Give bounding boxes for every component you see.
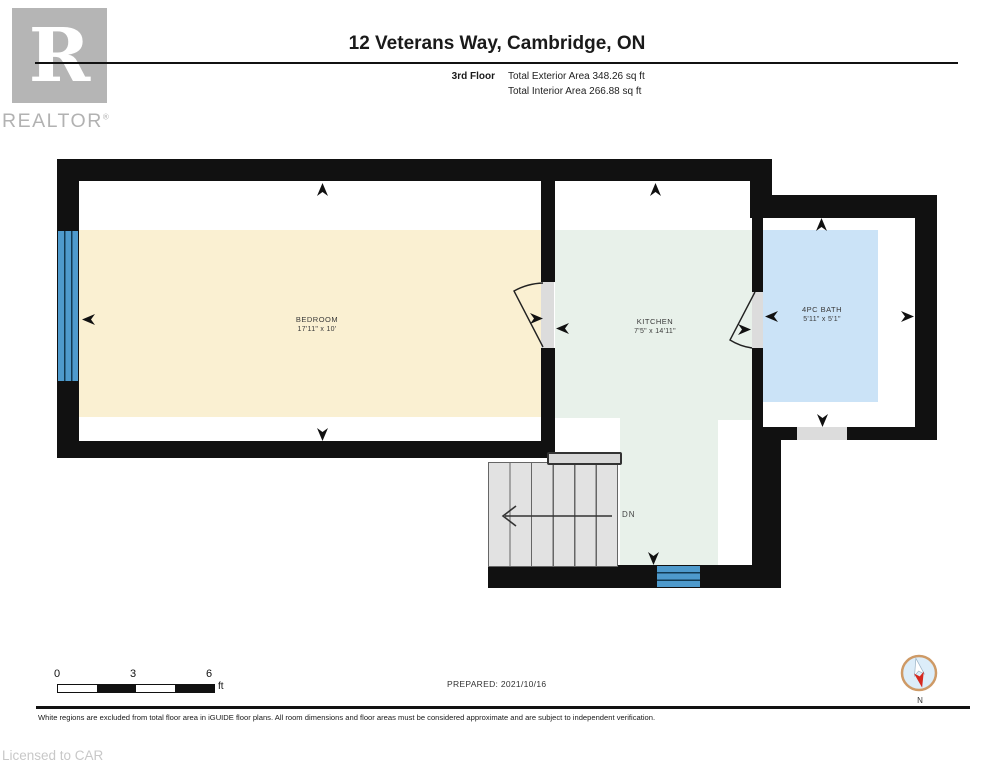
kitchen-arrow-left-icon: [556, 323, 569, 334]
scale-unit: ft: [218, 681, 224, 692]
kitchen-name: KITCHEN: [605, 317, 705, 327]
bath-arrow-down-icon: [817, 414, 828, 427]
disclaimer-text: White regions are excluded from total fl…: [38, 713, 958, 722]
scale-tick-0: 0: [54, 668, 60, 680]
door-swing-and-stair-arrow: [0, 0, 994, 768]
bedroom-arrow-down-icon: [317, 428, 328, 441]
bedroom-label: BEDROOM 17'11" x 10': [217, 315, 417, 335]
prepared-date: PREPARED: 2021/10/16: [447, 679, 546, 689]
compass-icon: [898, 652, 940, 696]
bath-dimensions: 5'11" x 5'1": [772, 315, 872, 325]
footer-divider-line: [36, 706, 970, 709]
bedroom-arrow-up-icon: [317, 183, 328, 196]
bedroom-arrow-left-icon: [82, 314, 95, 325]
license-text: Licensed to CAR: [2, 748, 103, 763]
bath-arrow-right-icon: [901, 311, 914, 322]
kitchen-label: KITCHEN 7'5" x 14'11": [605, 317, 705, 337]
stair-down-arrow: [503, 506, 612, 526]
scale-tick-3: 3: [130, 668, 136, 680]
scale-tick-6: 6: [206, 668, 212, 680]
bedroom-name: BEDROOM: [217, 315, 417, 325]
bedroom-dimensions: 17'11" x 10': [217, 325, 417, 335]
bath-door-swing: [730, 292, 755, 348]
kitchen-arrow-up-icon: [650, 183, 661, 196]
bath-label: 4PC BATH 5'11" x 5'1": [772, 305, 872, 325]
floorplan: DN BEDROOM 17'11" x 10' KITCHEN 7'5" x 1…: [0, 0, 994, 768]
kitchen-arrow-right-icon: [738, 324, 751, 335]
bath-name: 4PC BATH: [772, 305, 872, 315]
scale-bar: [57, 684, 215, 693]
kitchen-arrow-down-icon: [648, 552, 659, 565]
bedroom-arrow-right-icon: [530, 313, 543, 324]
compass-north-label: N: [911, 696, 929, 705]
bath-arrow-up-icon: [816, 218, 827, 231]
kitchen-dimensions: 7'5" x 14'11": [605, 327, 705, 337]
